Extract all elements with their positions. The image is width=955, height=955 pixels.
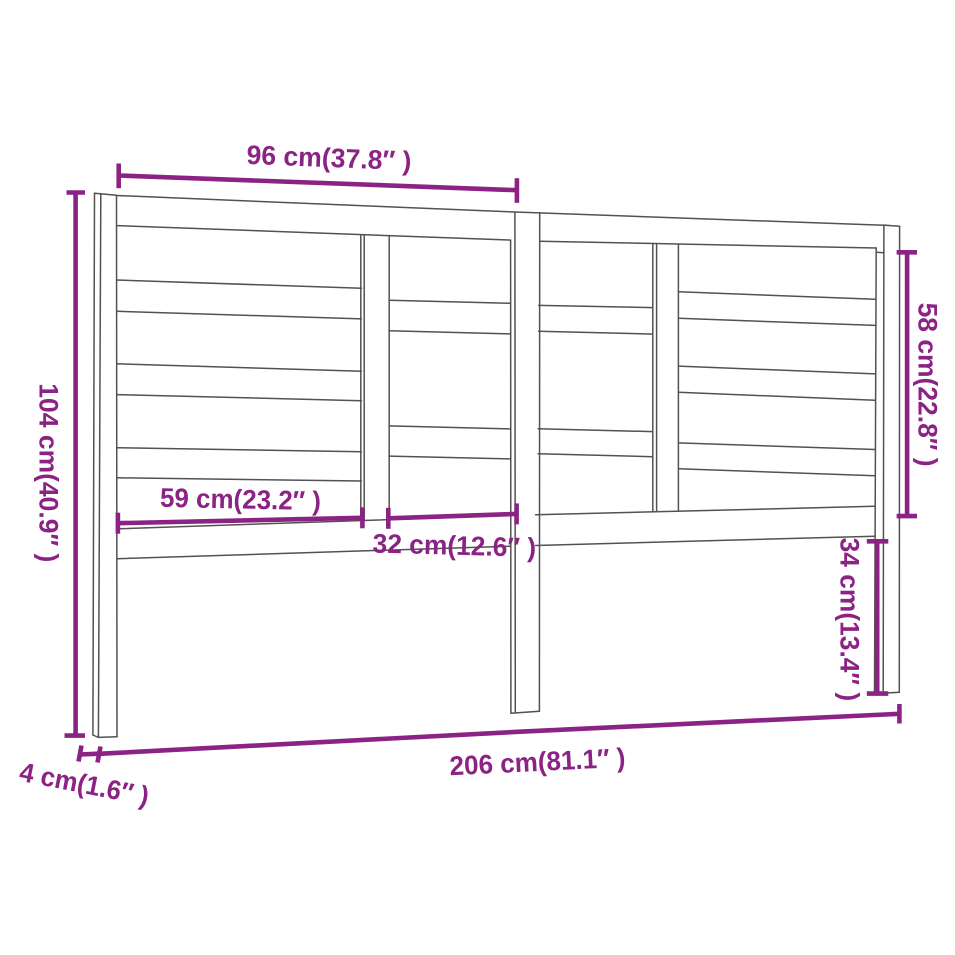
svg-text:32 cm(12.6″ ): 32 cm(12.6″ ) xyxy=(372,529,536,563)
svg-text:58 cm(22.8″ ): 58 cm(22.8″ ) xyxy=(913,303,943,467)
svg-text:96 cm(37.8″ ): 96 cm(37.8″ ) xyxy=(246,140,412,176)
svg-text:34 cm(13.4″ ): 34 cm(13.4″ ) xyxy=(834,538,864,702)
svg-text:59 cm(23.2″ ): 59 cm(23.2″ ) xyxy=(160,483,322,516)
svg-text:104 cm(40.9″ ): 104 cm(40.9″ ) xyxy=(33,383,63,562)
